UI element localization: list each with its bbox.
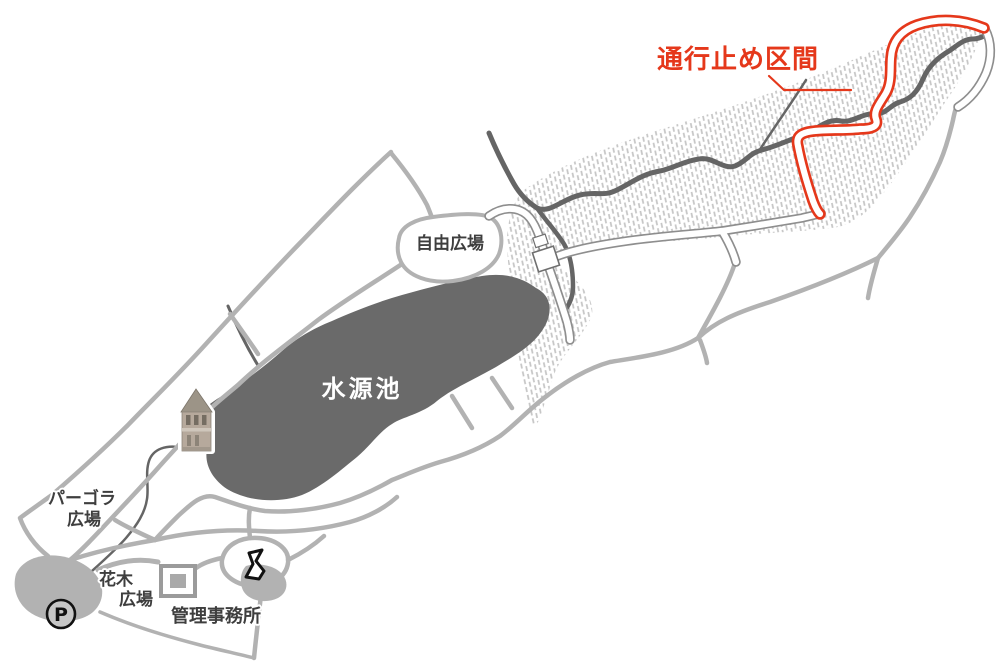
road-kaboku-north: [115, 520, 155, 540]
pergola-plaza-label-line1: パーゴラ: [48, 488, 116, 509]
free-plaza-label: 自由広場: [416, 233, 484, 254]
park-map: P 通行止め区間 自由広場 水源池 パーゴラ 広場 花木 広場 管理事務所: [0, 0, 1000, 663]
parking-icon: P: [47, 600, 75, 628]
pergola-plaza-label-line2: 広場: [67, 509, 101, 530]
pond-label: 水源池: [322, 375, 403, 403]
road-parking-east: [98, 560, 158, 570]
road-lattice-connector-2: [492, 378, 512, 408]
road-pergola-connector: [230, 314, 258, 354]
water-tower-icon: [181, 389, 212, 451]
park-map-canvas: P 通行止め区間 自由広場 水源池 パーゴラ 広場 花木 広場 管理事務所: [0, 0, 1000, 663]
management-office-label: 管理事務所: [171, 605, 261, 627]
flowering-plaza-label-line2: 広場: [119, 589, 153, 610]
road-junction-to-loop: [249, 508, 250, 538]
parking-letter: P: [54, 604, 68, 626]
road-stub-below-junction: [700, 340, 707, 363]
road-loop-to-square: [196, 558, 222, 568]
road-loop-east: [288, 536, 324, 560]
road-to-free-plaza: [391, 153, 433, 220]
closed-section-label: 通行止め区間: [657, 44, 819, 75]
building-square-icon: [161, 566, 195, 596]
office-building-icon: [246, 550, 264, 579]
road-lattice-connector-1: [452, 396, 472, 428]
road-from-whiteroad-end: [698, 263, 735, 338]
flowering-plaza-label-line1: 花木: [99, 569, 134, 590]
